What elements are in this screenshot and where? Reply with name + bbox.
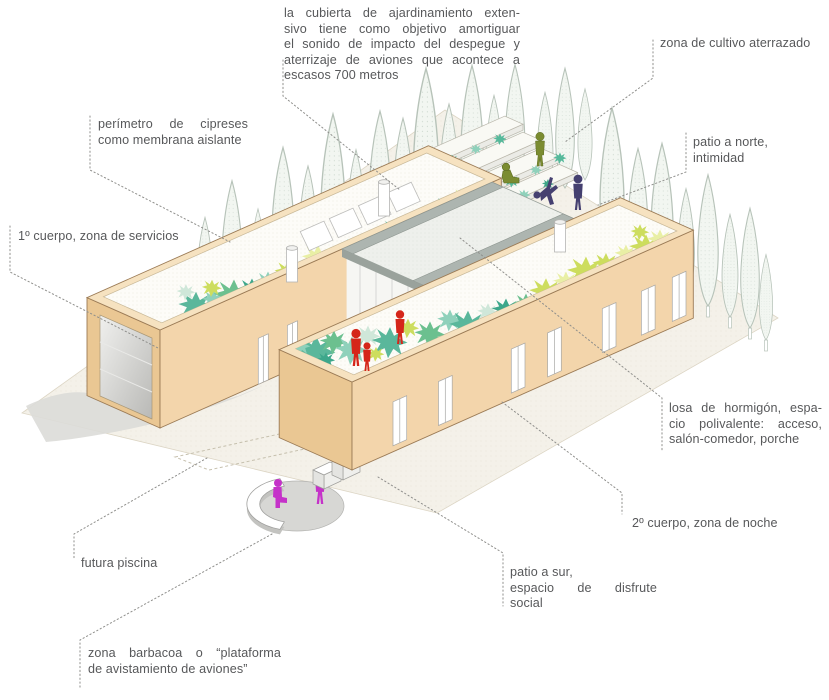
- cypress-tree: [578, 89, 592, 180]
- label-line: el sonido de impacto del despegue y: [284, 37, 520, 53]
- label-body2: 2º cuerpo, zona de noche: [632, 516, 778, 532]
- leader-future-pool: [74, 458, 207, 560]
- axonometric-diagram-page: la cubierta de ajardinamiento exten- siv…: [0, 0, 829, 700]
- label-line: zona de cultivo aterrazado: [660, 36, 810, 52]
- label-line: cio polivalente: acceso,: [669, 417, 822, 433]
- label-line: losa de hormigón, espa-: [669, 401, 822, 417]
- label-line: zona barbacoa o “plataforma: [88, 646, 281, 662]
- label-body1: 1º cuerpo, zona de servicios: [18, 229, 179, 245]
- label-line: la cubierta de ajardinamiento exten-: [284, 6, 520, 22]
- label-line: patio a norte,: [693, 135, 803, 151]
- label-north-patio: patio a norte, intimidad: [693, 135, 803, 166]
- label-cypress-perimeter: perímetro de cipreses como membrana aisl…: [98, 117, 248, 148]
- label-line: escasos 700 metros: [284, 68, 520, 84]
- label-line: aterrizaje de aviones que acontece a: [284, 53, 520, 69]
- label-line: salón-comedor, porche: [669, 432, 822, 448]
- label-barbecue: zona barbacoa o “plataforma de avistamie…: [88, 646, 281, 677]
- label-line: como membrana aislante: [98, 133, 248, 149]
- label-line: de avistamiento de aviones”: [88, 662, 281, 678]
- label-line: 2º cuerpo, zona de noche: [632, 516, 778, 532]
- label-line: 1º cuerpo, zona de servicios: [18, 229, 179, 245]
- cypress-tree: [759, 255, 772, 352]
- label-line: patio a sur,: [510, 565, 657, 581]
- label-line: social: [510, 596, 657, 612]
- label-line: intimidad: [693, 151, 803, 167]
- label-terraced-cultivation: zona de cultivo aterrazado: [660, 36, 810, 52]
- site-axonometric-drawing: [0, 0, 829, 700]
- roof-vent-chimney: [555, 220, 566, 252]
- label-line: espacio de disfrute: [510, 581, 657, 597]
- label-concrete-slab: losa de hormigón, espa- cio polivalente:…: [669, 401, 822, 448]
- label-line: futura piscina: [81, 556, 157, 572]
- label-line: sivo tiene como objetivo amortiguar: [284, 22, 520, 38]
- label-future-pool: futura piscina: [81, 556, 157, 572]
- label-roof-garden: la cubierta de ajardinamiento exten- siv…: [284, 6, 520, 84]
- label-line: perímetro de cipreses: [98, 117, 248, 133]
- label-south-patio: patio a sur, espacio de disfrute social: [510, 565, 657, 612]
